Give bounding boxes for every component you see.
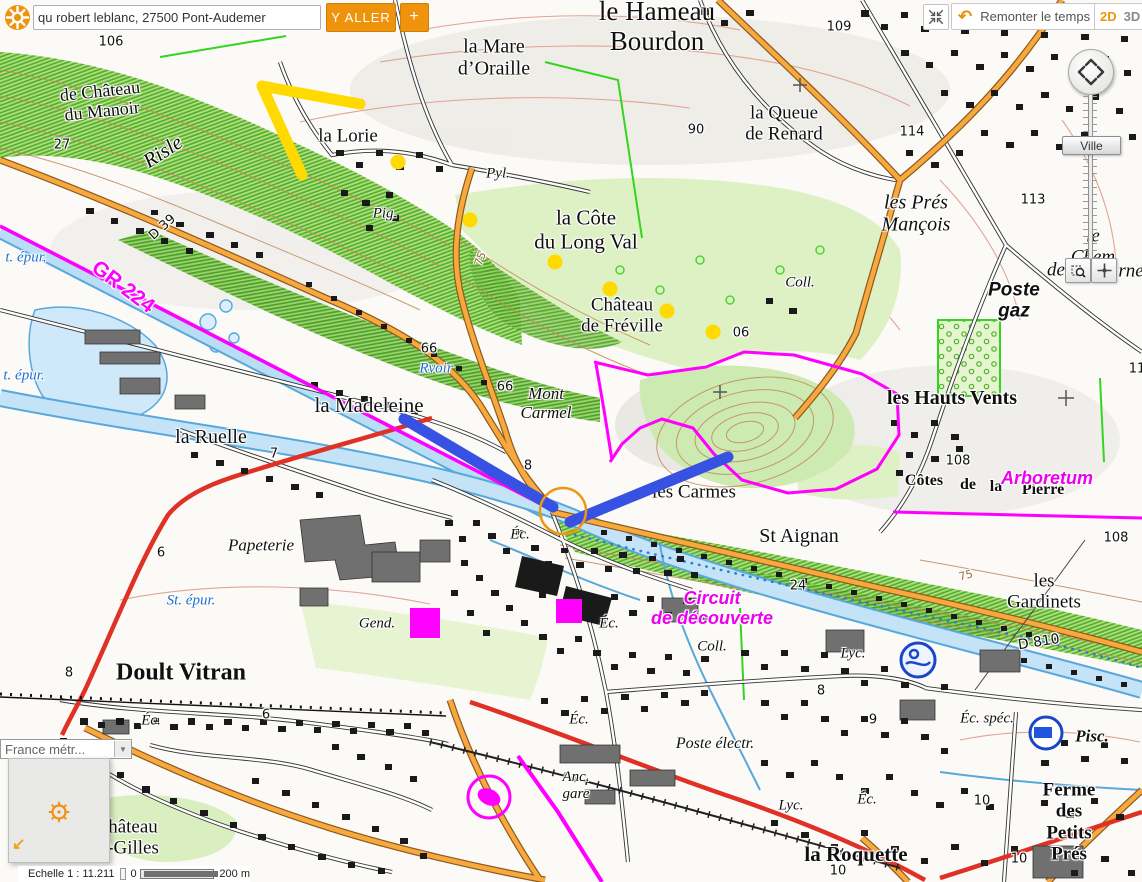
map-label: la Côte du Long Val (534, 206, 637, 253)
mode-2d-button[interactable]: 2D (1100, 9, 1117, 24)
zoom-rectangle-icon (1070, 262, 1087, 279)
undo-icon: ↶ (958, 8, 972, 25)
map-label: Éc. (569, 712, 589, 729)
map-label: 109 (827, 21, 852, 36)
map-label: Ferme des Petits Prés (1033, 779, 1106, 864)
center-map-button[interactable] (1091, 258, 1117, 283)
search-bar: Y ALLER + (4, 2, 429, 32)
map-label: 114 (900, 126, 925, 141)
map-label: 66 (421, 343, 438, 358)
scale-start-label: 0 (130, 868, 136, 880)
map-label: Éc. (141, 713, 161, 730)
map-label: 108 (946, 455, 971, 470)
map-label: t. épur. (3, 368, 44, 385)
crosshair-icon (1096, 262, 1113, 279)
remonter-le-temps-button[interactable]: ↶ Remonter le temps (951, 3, 1099, 30)
zoom-slider-handle[interactable]: Ville (1062, 136, 1121, 155)
scale-text: Echelle 1 : 11.211 (28, 868, 114, 880)
map-label: Lyc. (779, 798, 804, 815)
map-label: 8 (65, 667, 73, 682)
map-label: Château de Fréville (581, 295, 663, 338)
canoe-icon (901, 643, 935, 677)
map-label: 10 (1011, 853, 1028, 868)
pan-control[interactable] (1068, 49, 1114, 95)
mode-3d-button[interactable]: 3D (1124, 9, 1141, 24)
map-label: les Prés Mançois (882, 192, 951, 237)
map-label: 7 (270, 448, 278, 463)
map-label: la Lorie (318, 125, 378, 146)
map-label: 108 (1104, 532, 1129, 547)
chevron-down-icon: ▼ (114, 741, 131, 757)
status-bar: Echelle 1 : 11.211 0 200 m (18, 866, 250, 882)
map-label: 10 (974, 795, 991, 810)
add-button[interactable]: + (400, 3, 429, 32)
overview-minimap[interactable]: ↙ (8, 758, 110, 863)
map-viewport: le Hameau Bourdon la Mare d’Oraille la Q… (0, 0, 1142, 882)
map-label: Pig. (373, 206, 398, 223)
map-label: 113 (1021, 194, 1046, 209)
map-label: 8 (524, 460, 532, 475)
map-label: rne (1118, 260, 1142, 281)
map-label: 8 (817, 685, 825, 700)
map-label: Arboretum (1001, 468, 1093, 488)
map-label: Pyl. (486, 166, 510, 183)
map-label: 27 (54, 139, 71, 154)
map-label: de Château du Manoir (59, 77, 143, 126)
map-label: les Hauts Vents (887, 387, 1017, 409)
map-label: hâteau -Gilles (107, 817, 159, 860)
zoom-rectangle-button[interactable] (1065, 258, 1091, 283)
map-label: Circuit de découverte (651, 588, 773, 628)
scale-separator-icon (120, 868, 126, 880)
map-label: Papeterie (228, 535, 294, 554)
scale-bar-fill (144, 871, 218, 877)
go-button[interactable]: Y ALLER (326, 3, 396, 32)
pan-arrows-icon (1069, 50, 1113, 94)
map-label: Pisc. (1075, 726, 1109, 745)
map-label: de (960, 476, 976, 494)
map-label: 6 (262, 709, 270, 724)
remonter-label: Remonter le temps (980, 9, 1090, 24)
map-label: 9 (869, 714, 877, 729)
mode-switcher: 2D 3D (1094, 3, 1142, 30)
map-label: la Roquette (804, 843, 907, 867)
map-label: Éc. (599, 616, 619, 633)
map-label: Anc. gare (562, 769, 589, 803)
map-label: la Ruelle (175, 426, 247, 448)
map-label: 11 (1129, 363, 1142, 378)
map-label: t. épur. (5, 250, 46, 267)
map-label: Éc. spéc. (960, 711, 1014, 728)
map-label: les Gardinets (995, 571, 1093, 614)
map-label: Éc. (857, 792, 877, 809)
map-label: St. épur. (167, 593, 216, 610)
map-label: 6 (157, 547, 165, 562)
map-label: Gend. (359, 616, 395, 633)
map-label: Doult Vitran (116, 660, 246, 687)
minimap-compass-icon (48, 801, 70, 823)
map-label: la Mare d’Oraille (458, 36, 530, 81)
map-label: Côtes (905, 472, 943, 490)
map-label: Rvoir (419, 361, 452, 378)
map-label: la Queue de Renard (745, 103, 823, 146)
map-label: le Hameau Bourdon (599, 0, 715, 56)
collapse-icon (927, 8, 945, 26)
scale-end-label: 200 m (219, 868, 250, 880)
map-label: Poste gaz (988, 280, 1040, 323)
map-label: 106 (99, 36, 124, 51)
collapse-button[interactable] (923, 4, 949, 30)
map-label: 06 (733, 327, 750, 342)
minimap-expand-arrow-icon[interactable]: ↙ (12, 837, 25, 853)
layer-selector[interactable]: France métr... ▼ (0, 739, 132, 759)
map-label: 66 (497, 381, 514, 396)
map-label: St Aignan (759, 525, 838, 547)
map-label: Poste électr. (676, 735, 754, 753)
map-label: les Carmes (652, 481, 736, 502)
map-label: de (1047, 259, 1065, 280)
map-label: la Madeleine (314, 394, 423, 418)
compass-icon (4, 4, 31, 31)
search-input[interactable] (33, 5, 321, 30)
map-label: 24 (790, 580, 807, 595)
map-label: Coll. (785, 275, 815, 292)
scale-bar (140, 869, 215, 879)
map-label: 90 (688, 124, 705, 139)
map-label: Coll. (697, 639, 727, 656)
layer-selected-label: France métr... (1, 742, 114, 757)
zoom-slider[interactable] (1088, 95, 1093, 259)
map-label: Lyc. (841, 646, 866, 663)
map-label: Éc. (510, 527, 530, 544)
map-label: 10 (830, 865, 847, 880)
map-label: Mont Carmel (521, 384, 572, 422)
